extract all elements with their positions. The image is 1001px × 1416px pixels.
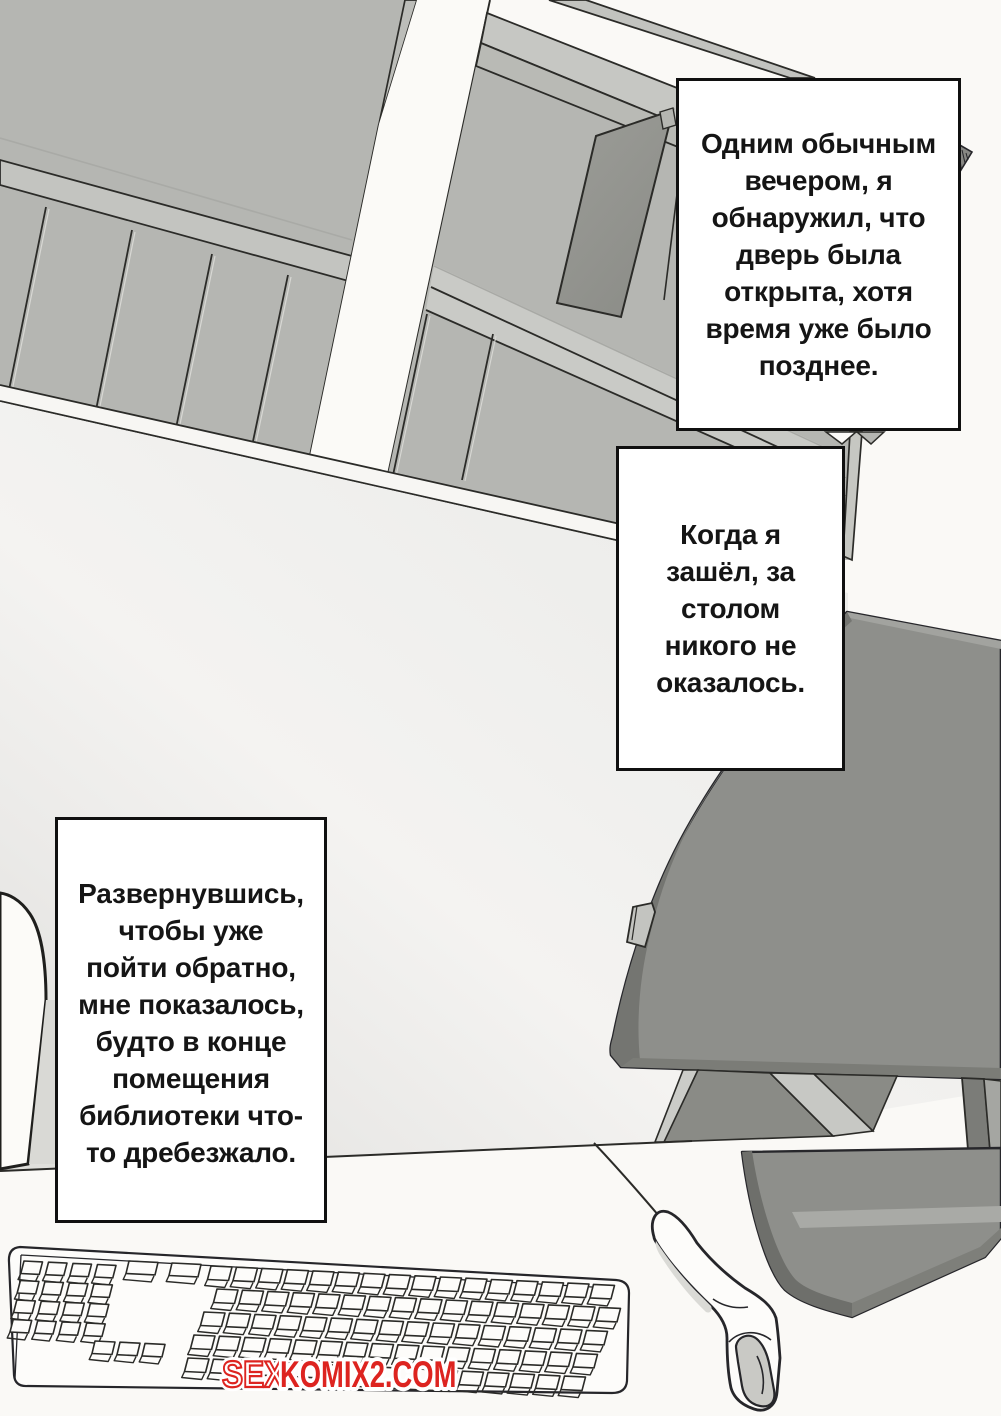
- svg-text:KOMIX2.COM: KOMIX2.COM: [280, 1354, 456, 1395]
- svg-text:SEX: SEX: [222, 1355, 285, 1396]
